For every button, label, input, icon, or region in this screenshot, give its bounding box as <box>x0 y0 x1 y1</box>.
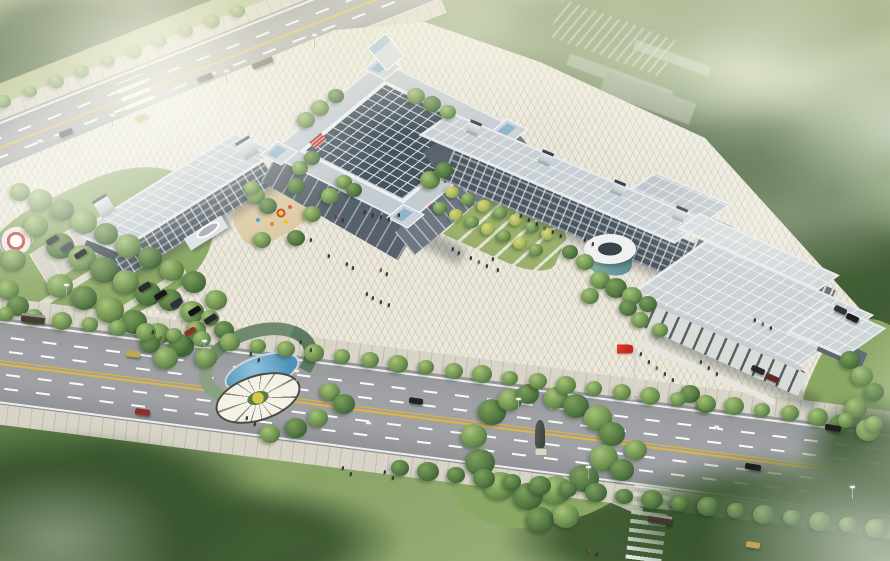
pedestrian <box>478 260 480 264</box>
pedestrian <box>560 234 562 238</box>
pedestrian <box>486 264 488 268</box>
street-light-pole <box>852 488 853 499</box>
pedestrian <box>520 214 522 218</box>
pedestrian <box>596 552 598 556</box>
street-light-lamp <box>38 140 43 142</box>
pedestrian <box>386 272 388 276</box>
pedestrian <box>528 218 530 222</box>
pedestrian <box>762 322 764 326</box>
street-light-pole <box>314 36 315 47</box>
car <box>184 326 197 337</box>
street-light-pole <box>40 142 41 153</box>
pedestrian <box>258 358 260 362</box>
car <box>845 313 859 324</box>
street-light-pole <box>66 286 67 297</box>
pedestrian <box>544 226 546 230</box>
car <box>59 241 73 253</box>
pedestrian <box>770 326 772 330</box>
pedestrian <box>552 230 554 234</box>
pedestrian <box>664 372 666 376</box>
pedestrian <box>672 378 674 382</box>
car <box>187 305 201 317</box>
street-light-lamp <box>110 114 115 116</box>
pedestrian <box>716 372 718 376</box>
street-light-pole <box>588 468 589 479</box>
pedestrian <box>372 213 374 217</box>
bus <box>21 312 46 324</box>
pedestrian <box>346 262 348 266</box>
pedestrian <box>592 242 594 246</box>
street-light-pole <box>518 400 519 411</box>
bus <box>647 513 672 526</box>
aerial-campus-rendering <box>0 0 890 561</box>
street-light-lamp <box>366 422 371 424</box>
pedestrian <box>350 472 352 476</box>
pedestrian <box>310 348 312 352</box>
pedestrian <box>352 266 354 270</box>
pedestrian <box>398 213 400 217</box>
car <box>203 313 217 325</box>
pedestrian <box>336 214 338 218</box>
car <box>135 112 148 121</box>
street-light-lamp <box>224 70 229 72</box>
red-flag <box>617 345 633 354</box>
pedestrian <box>656 366 658 370</box>
street-light-lamp <box>294 370 299 372</box>
pedestrian <box>497 268 499 272</box>
pedestrian <box>458 251 460 255</box>
car <box>833 305 847 316</box>
pedestrian <box>250 352 252 356</box>
car <box>45 234 59 246</box>
car <box>73 248 87 260</box>
street-light-lamp <box>586 466 591 468</box>
street-light-lamp <box>64 284 69 286</box>
pedestrian <box>246 416 248 420</box>
car <box>137 281 151 293</box>
pedestrian <box>364 210 366 214</box>
pedestrian <box>754 318 756 322</box>
street-light-lamp <box>714 426 719 428</box>
pedestrian <box>430 204 432 208</box>
pedestrian <box>708 366 710 370</box>
street-light-pole <box>226 72 227 83</box>
street-light-lamp <box>312 34 317 36</box>
pedestrian <box>160 336 162 340</box>
car <box>134 408 150 416</box>
car <box>764 372 779 383</box>
pedestrian <box>470 256 472 260</box>
car <box>126 350 141 358</box>
vehicles-and-people <box>0 0 890 561</box>
street-light-lamp <box>516 398 521 400</box>
car <box>825 424 842 432</box>
car <box>169 297 183 309</box>
pedestrian <box>342 466 344 470</box>
street-light-pole <box>204 342 205 353</box>
pedestrian <box>536 222 538 226</box>
car <box>745 463 762 471</box>
pedestrian <box>380 215 382 219</box>
street-light-pole <box>296 372 297 383</box>
pedestrian <box>588 548 590 552</box>
pedestrian <box>584 238 586 242</box>
car <box>750 364 765 375</box>
street-light-pole <box>112 116 113 127</box>
street-light-lamp <box>850 486 855 488</box>
pedestrian <box>384 470 386 474</box>
street-light-pole <box>368 424 369 435</box>
car <box>58 128 73 139</box>
pedestrian <box>372 296 374 300</box>
car <box>153 289 167 301</box>
pedestrian <box>152 330 154 334</box>
pedestrian <box>388 217 390 221</box>
car <box>409 397 424 405</box>
pedestrian <box>366 292 368 296</box>
pedestrian <box>392 476 394 480</box>
pedestrian <box>452 247 454 251</box>
pedestrian <box>380 300 382 304</box>
pedestrian <box>648 360 650 364</box>
street-light-pole <box>716 428 717 439</box>
pedestrian <box>700 360 702 364</box>
car <box>196 72 213 84</box>
bus <box>250 54 273 70</box>
pedestrian <box>380 268 382 272</box>
street-light-lamp <box>202 340 207 342</box>
pedestrian <box>300 340 302 344</box>
pedestrian <box>254 422 256 426</box>
pedestrian <box>328 254 330 258</box>
pedestrian <box>342 218 344 222</box>
pedestrian <box>640 352 642 356</box>
pedestrian <box>492 257 494 261</box>
pedestrian <box>388 303 390 307</box>
car <box>746 541 761 549</box>
pedestrian <box>310 238 312 242</box>
